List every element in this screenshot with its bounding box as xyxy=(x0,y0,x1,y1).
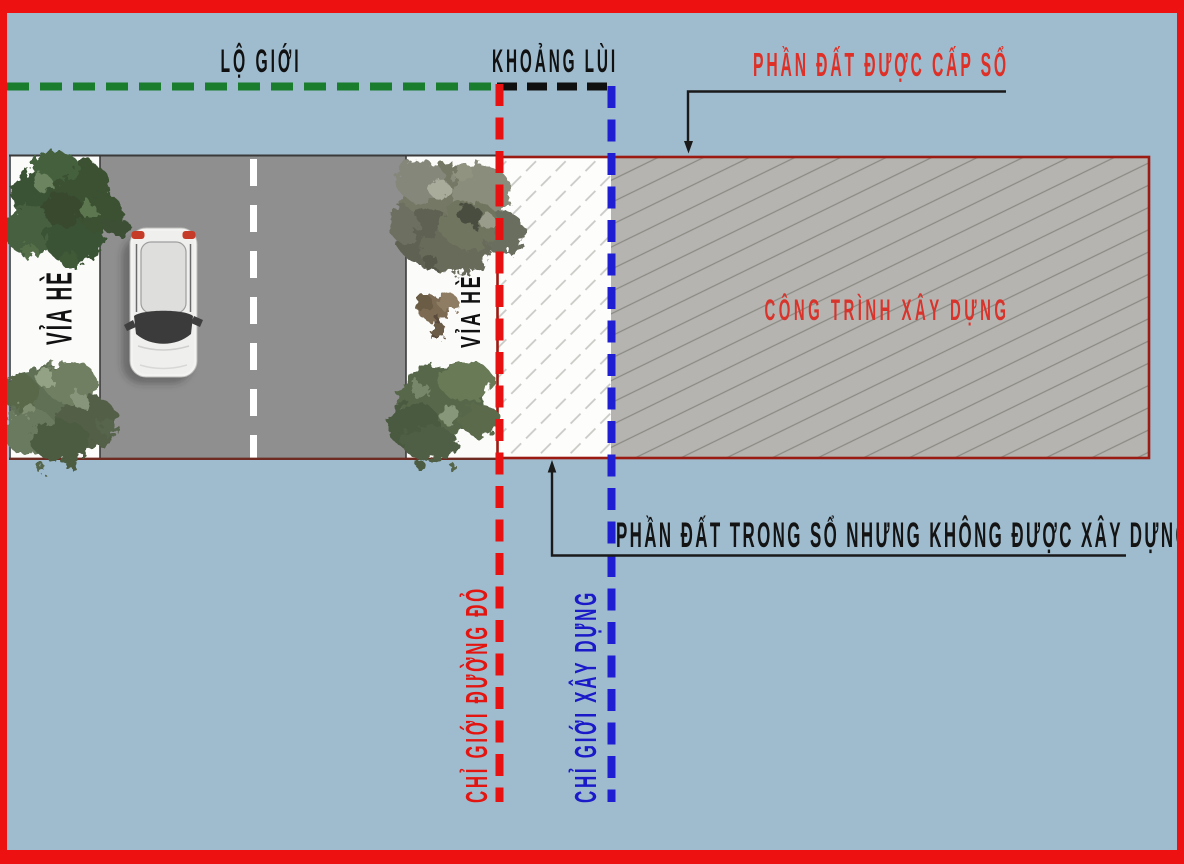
svg-text:PHẦN ĐẤT ĐƯỢC CẤP SỔ: PHẦN ĐẤT ĐƯỢC CẤP SỔ xyxy=(753,46,1009,83)
svg-text:CHỈ GIỚI ĐƯỜNG ĐỎ: CHỈ GIỚI ĐƯỜNG ĐỎ xyxy=(458,586,494,803)
svg-text:CÔNG TRÌNH XÂY DỰNG: CÔNG TRÌNH XÂY DỰNG xyxy=(765,293,1010,327)
svg-text:KHOẢNG LÙI: KHOẢNG LÙI xyxy=(492,43,618,79)
svg-text:LỘ GIỚI: LỘ GIỚI xyxy=(221,43,302,79)
svg-text:VỈA HÈ: VỈA HÈ xyxy=(454,274,486,348)
svg-text:PHẦN ĐẤT TRONG SỔ NHƯNG KHÔNG: PHẦN ĐẤT TRONG SỔ NHƯNG KHÔNG ĐƯỢC XÂY D… xyxy=(616,515,1184,555)
svg-text:VỈA HÈ: VỈA HÈ xyxy=(39,270,80,345)
svg-text:CHỈ GIỚI XÂY DỰNG: CHỈ GIỚI XÂY DỰNG xyxy=(567,590,603,803)
